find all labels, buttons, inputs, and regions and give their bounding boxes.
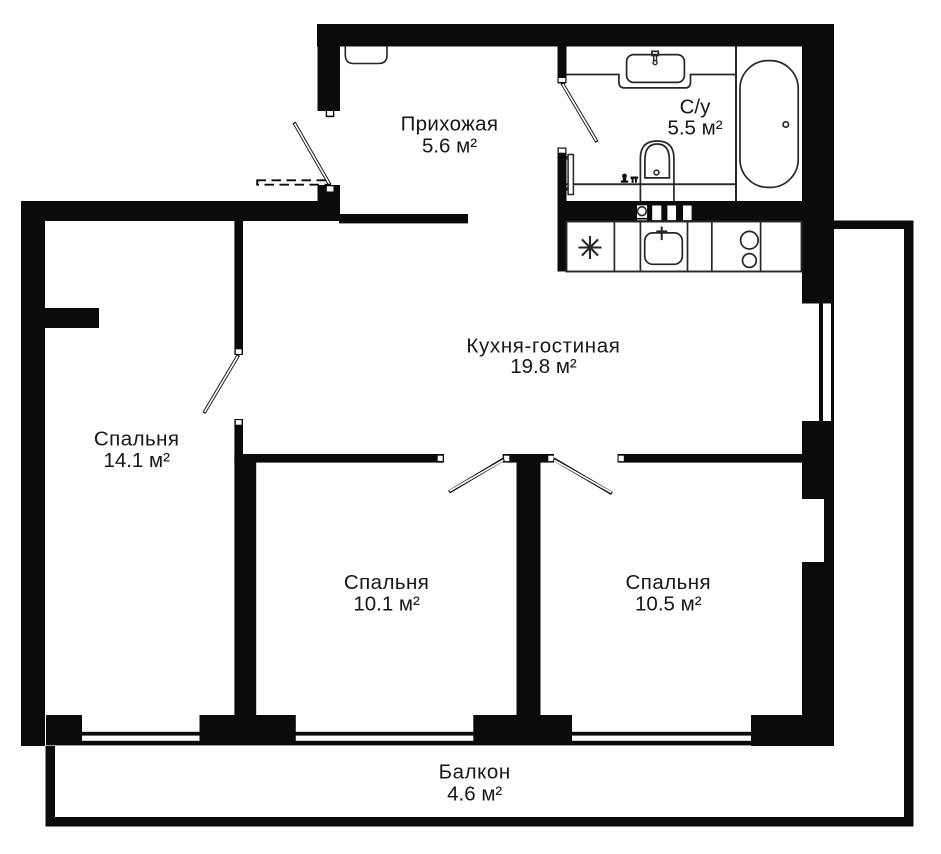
svg-text:14.1 м²: 14.1 м² xyxy=(103,449,170,472)
svg-text:Спальня: Спальня xyxy=(626,571,712,594)
svg-text:Прихожая: Прихожая xyxy=(401,113,499,136)
svg-text:5.5 м²: 5.5 м² xyxy=(667,117,722,140)
svg-text:Спальня: Спальня xyxy=(344,571,430,594)
svg-text:10.5 м²: 10.5 м² xyxy=(635,593,702,616)
svg-text:5.6 м²: 5.6 м² xyxy=(422,134,477,157)
svg-text:10.1 м²: 10.1 м² xyxy=(353,593,420,616)
svg-text:4.6 м²: 4.6 м² xyxy=(447,783,502,806)
svg-text:Балкон: Балкон xyxy=(439,761,511,784)
svg-text:19.8 м²: 19.8 м² xyxy=(510,355,577,378)
svg-text:С/у: С/у xyxy=(680,96,712,119)
svg-text:Спальня: Спальня xyxy=(94,428,180,451)
